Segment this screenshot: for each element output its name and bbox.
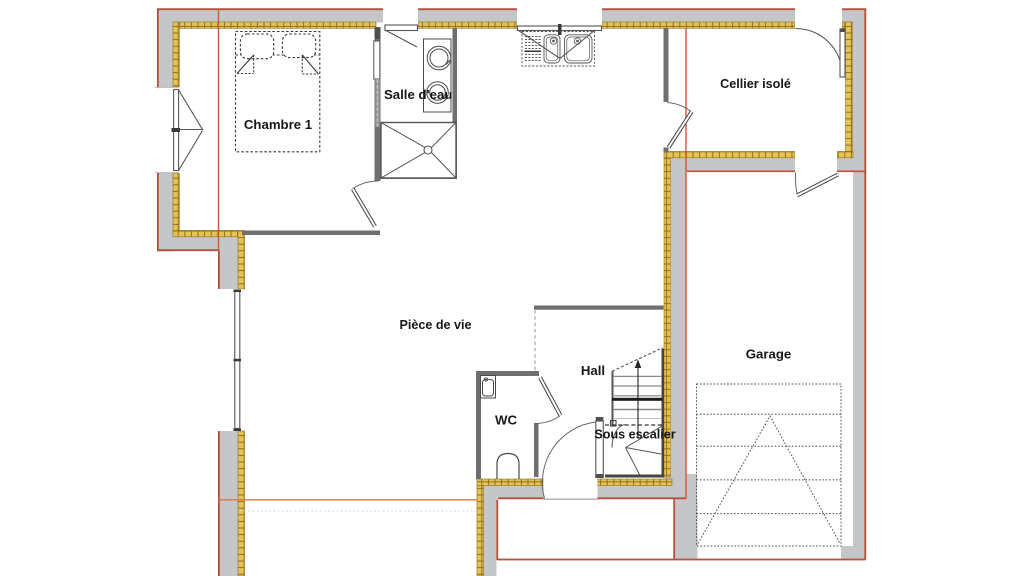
svg-text:Hall: Hall <box>581 363 605 378</box>
svg-text:Salle d'eau: Salle d'eau <box>384 87 452 102</box>
svg-text:WC: WC <box>495 413 517 428</box>
svg-text:Chambre 1: Chambre 1 <box>244 117 312 132</box>
svg-text:Garage: Garage <box>746 347 791 362</box>
svg-text:Pièce de vie: Pièce de vie <box>399 318 471 332</box>
svg-text:Cellier isolé: Cellier isolé <box>720 77 791 91</box>
svg-text:Sous escalier: Sous escalier <box>594 428 675 442</box>
